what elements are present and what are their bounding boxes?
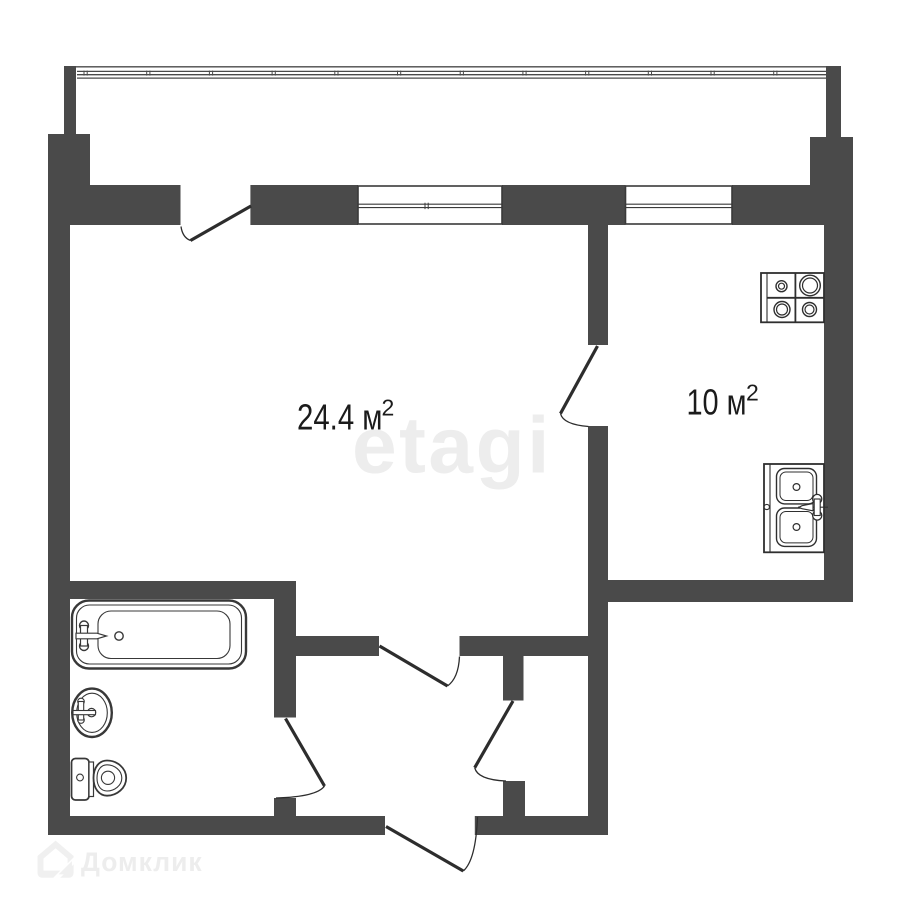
svg-text:Домклик: Домклик (81, 847, 203, 877)
svg-text:24.4 м: 24.4 м (297, 397, 383, 438)
svg-text:10 м: 10 м (687, 382, 747, 423)
svg-text:2: 2 (382, 395, 395, 421)
svg-text:2: 2 (746, 380, 759, 406)
